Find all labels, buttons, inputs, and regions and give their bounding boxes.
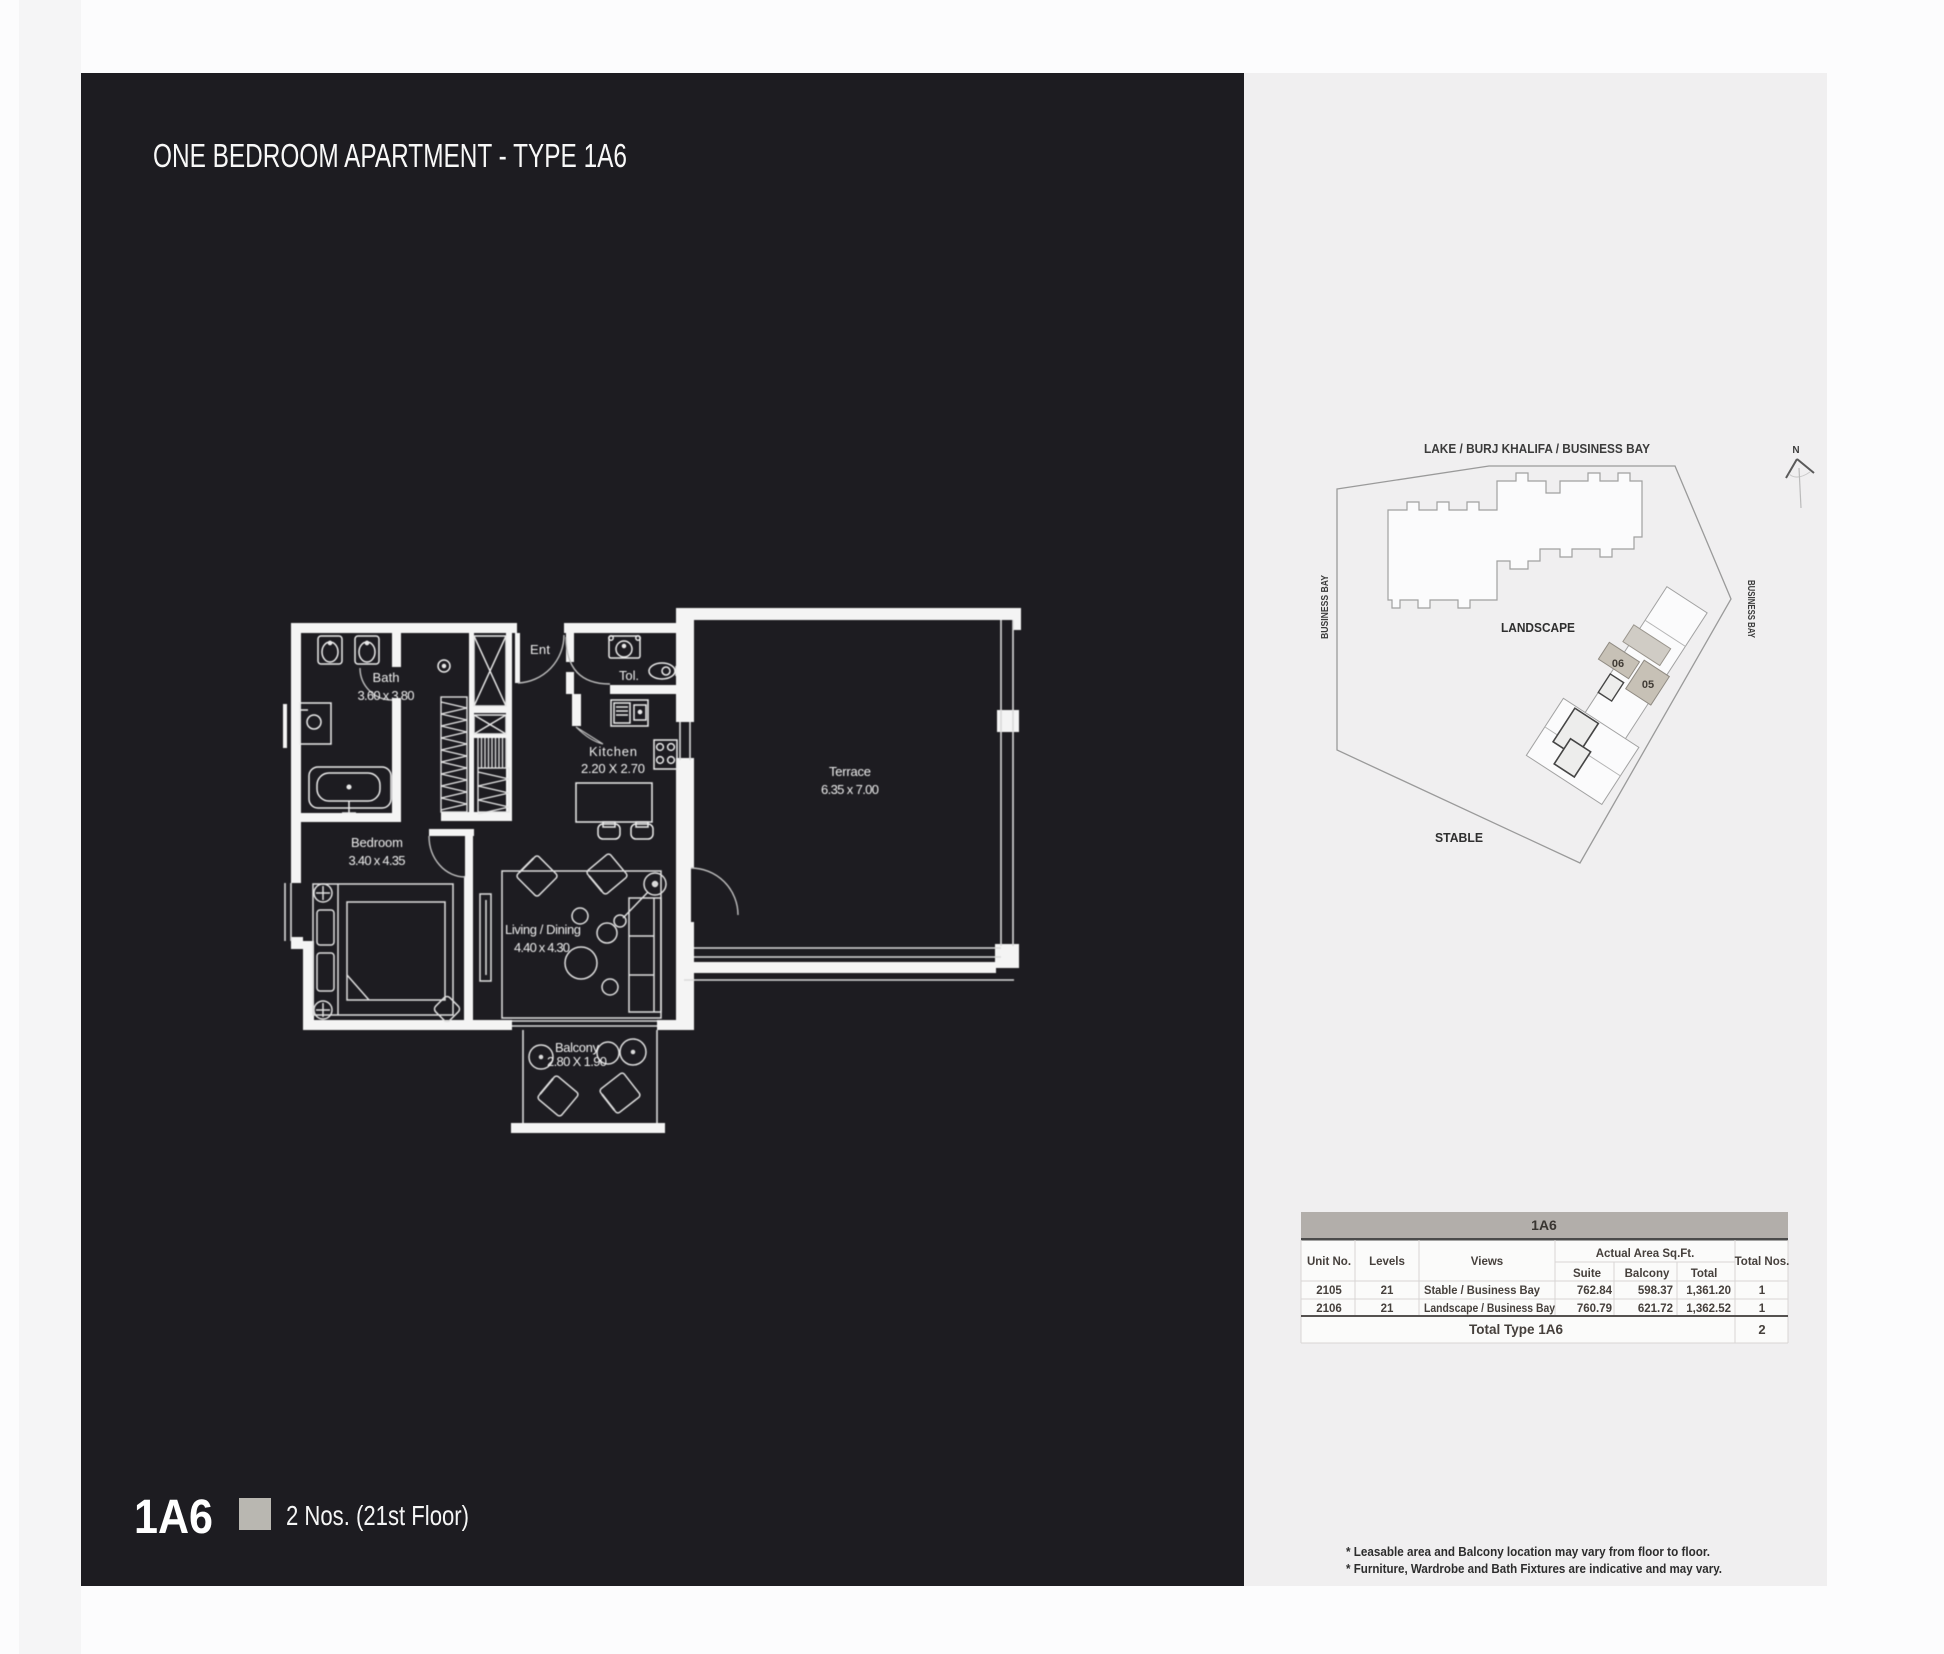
- svg-text:21: 21: [1381, 1285, 1394, 1297]
- svg-text:N: N: [1792, 445, 1799, 456]
- svg-text:Bath: Bath: [373, 670, 400, 685]
- svg-text:598.37: 598.37: [1638, 1285, 1673, 1297]
- svg-text:621.72: 621.72: [1638, 1303, 1673, 1315]
- svg-text:STABLE: STABLE: [1435, 830, 1483, 845]
- svg-text:* Leasable area and Balcony lo: * Leasable area and Balcony location may…: [1346, 1544, 1710, 1559]
- svg-text:Actual Area Sq.Ft.: Actual Area Sq.Ft.: [1596, 1248, 1695, 1260]
- svg-text:ONE BEDROOM APARTMENT - TYPE 1: ONE BEDROOM APARTMENT - TYPE 1A6: [153, 137, 627, 174]
- svg-text:Suite: Suite: [1573, 1268, 1601, 1280]
- svg-text:2106: 2106: [1316, 1303, 1342, 1315]
- svg-text:3.40 x 4.35: 3.40 x 4.35: [349, 853, 406, 868]
- svg-text:762.84: 762.84: [1577, 1285, 1613, 1297]
- svg-text:6.35 x 7.00: 6.35 x 7.00: [821, 782, 879, 797]
- svg-text:Terrace: Terrace: [829, 764, 871, 779]
- svg-text:Living / Dining: Living / Dining: [505, 922, 581, 937]
- svg-text:BUSINESS BAY: BUSINESS BAY: [1745, 580, 1757, 638]
- svg-text:Total: Total: [1691, 1268, 1718, 1280]
- svg-text:760.79: 760.79: [1577, 1303, 1612, 1315]
- svg-text:LAKE / BURJ KHALIFA / BUSINESS: LAKE / BURJ KHALIFA / BUSINESS BAY: [1424, 441, 1650, 456]
- svg-text:Unit No.: Unit No.: [1307, 1256, 1351, 1268]
- svg-text:2 Nos. (21st Floor): 2 Nos. (21st Floor): [286, 1500, 469, 1531]
- svg-text:Views: Views: [1471, 1256, 1503, 1268]
- svg-text:1,362.52: 1,362.52: [1686, 1303, 1731, 1315]
- svg-text:Balcony: Balcony: [1625, 1268, 1670, 1280]
- svg-text:05: 05: [1642, 679, 1654, 691]
- svg-text:2: 2: [1758, 1322, 1765, 1337]
- svg-text:2105: 2105: [1316, 1285, 1342, 1297]
- svg-text:3.60 x 3.80: 3.60 x 3.80: [358, 688, 415, 703]
- svg-text:4.40 x 4.30: 4.40 x 4.30: [514, 940, 570, 955]
- svg-text:Bedroom: Bedroom: [351, 835, 403, 850]
- svg-text:* Furniture, Wardrobe and Bath: * Furniture, Wardrobe and Bath Fixtures …: [1346, 1561, 1722, 1576]
- svg-text:21: 21: [1381, 1303, 1394, 1315]
- svg-text:1A6: 1A6: [1531, 1217, 1557, 1233]
- svg-text:1: 1: [1759, 1285, 1766, 1297]
- svg-text:Tol.: Tol.: [619, 668, 639, 683]
- svg-text:Stable / Business Bay: Stable / Business Bay: [1424, 1285, 1541, 1297]
- svg-text:2.80 X 1.90: 2.80 X 1.90: [547, 1054, 607, 1069]
- svg-text:Landscape / Business Bay: Landscape / Business Bay: [1424, 1303, 1556, 1315]
- svg-text:Total Nos.: Total Nos.: [1735, 1256, 1790, 1268]
- svg-text:Total Type 1A6: Total Type 1A6: [1469, 1322, 1564, 1337]
- svg-text:BUSINESS BAY: BUSINESS BAY: [1319, 575, 1331, 639]
- svg-text:Kitchen: Kitchen: [589, 744, 637, 759]
- svg-text:2.20 X 2.70: 2.20 X 2.70: [581, 761, 645, 776]
- svg-text:Balcony: Balcony: [555, 1040, 600, 1055]
- svg-text:1: 1: [1759, 1303, 1766, 1315]
- svg-text:06: 06: [1612, 658, 1624, 670]
- svg-text:LANDSCAPE: LANDSCAPE: [1501, 620, 1575, 635]
- svg-text:Levels: Levels: [1369, 1256, 1405, 1268]
- svg-text:Ent: Ent: [530, 642, 550, 657]
- svg-text:1A6: 1A6: [134, 1491, 213, 1544]
- svg-text:1,361.20: 1,361.20: [1686, 1285, 1731, 1297]
